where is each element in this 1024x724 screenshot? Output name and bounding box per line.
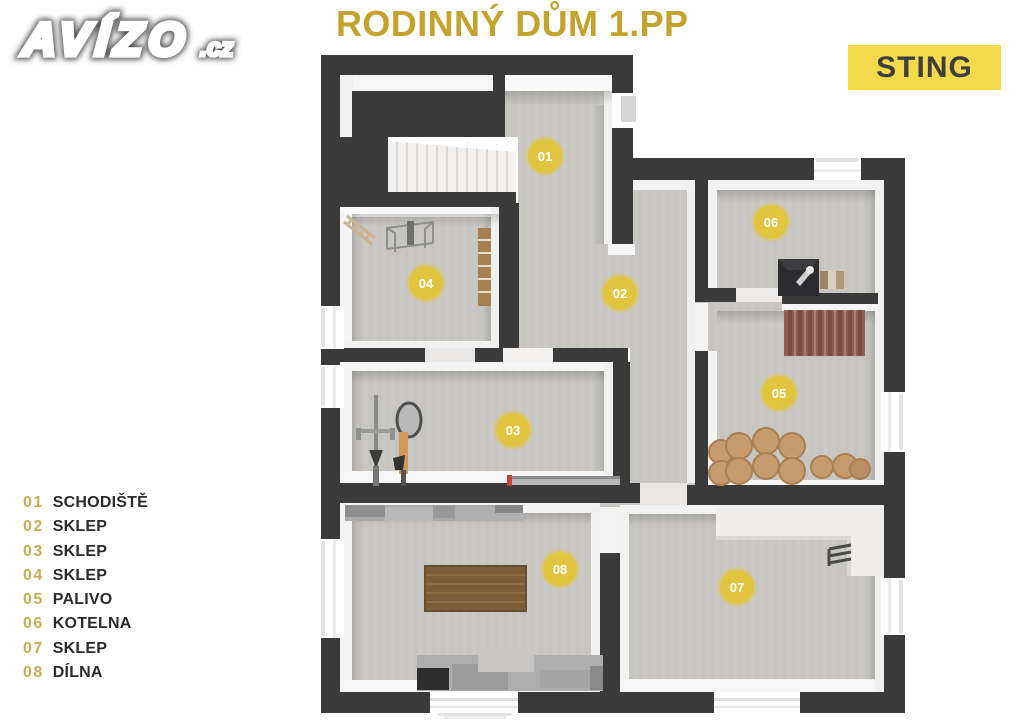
svg-text:05: 05 — [772, 386, 786, 401]
svg-text:02: 02 — [613, 286, 627, 301]
svg-text:07: 07 — [730, 580, 744, 595]
svg-text:03: 03 — [506, 423, 520, 438]
svg-text:06: 06 — [764, 215, 778, 230]
svg-text:01: 01 — [538, 149, 552, 164]
svg-text:08: 08 — [553, 562, 567, 577]
svg-text:04: 04 — [419, 276, 434, 291]
